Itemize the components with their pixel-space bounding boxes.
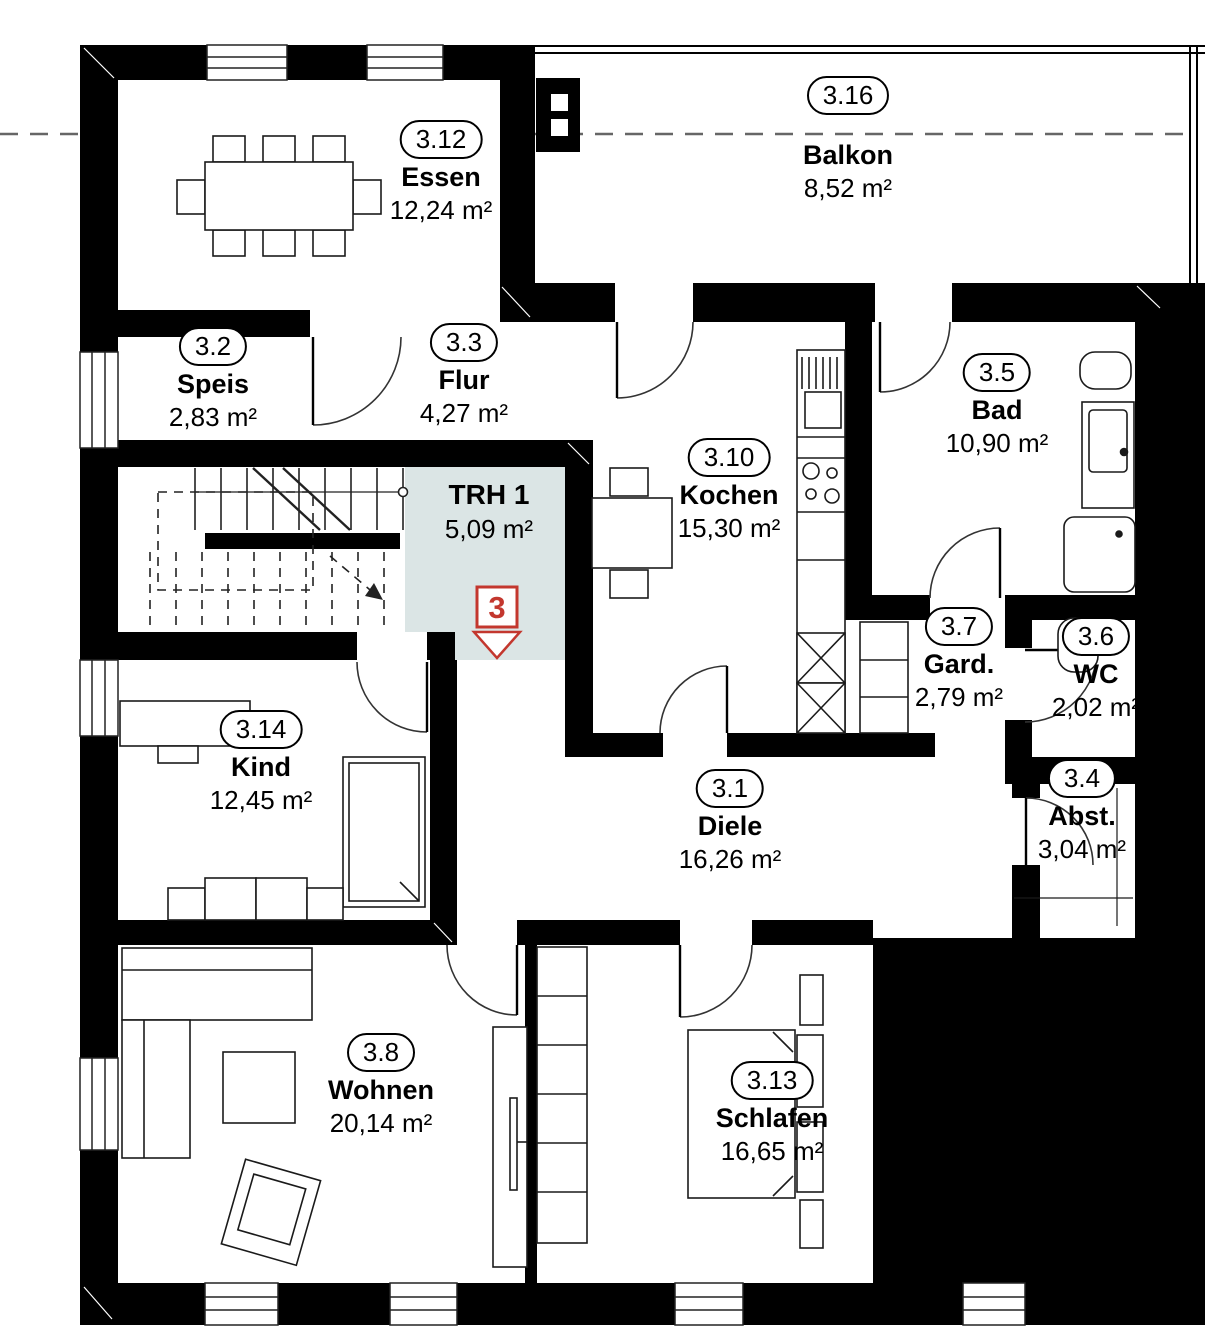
- room-area: 2,83 m²: [169, 403, 257, 432]
- room-label-balkon: 3.16 Balkon 8,52 m²: [803, 76, 893, 203]
- walls: [80, 45, 1205, 1325]
- desk-chair: [158, 746, 198, 763]
- room-area: 5,09 m²: [445, 515, 533, 544]
- room-area: 12,24 m²: [390, 196, 493, 225]
- room-name: TRH 1: [449, 480, 530, 511]
- room-area: 20,14 m²: [330, 1109, 433, 1138]
- chimney: [536, 78, 580, 152]
- room-label-diele: 3.1 Diele 16,26 m²: [679, 769, 782, 874]
- room-area: 4,27 m²: [420, 399, 508, 428]
- room-area: 16,65 m²: [721, 1137, 824, 1166]
- window-essen-1: [207, 45, 287, 80]
- room-area: 10,90 m²: [946, 429, 1049, 458]
- tv: [510, 1098, 517, 1190]
- room-name: Schlafen: [716, 1104, 829, 1134]
- room-number-badge: 3.7: [925, 607, 993, 646]
- door-arc-bad: [930, 528, 1000, 598]
- room-name: Speis: [177, 370, 249, 400]
- room-area: 15,30 m²: [678, 514, 781, 543]
- wardrobe-shelves-gard: [860, 622, 908, 733]
- door-arc-balkon-kochen: [617, 322, 693, 398]
- room-number-badge: 3.10: [688, 438, 771, 477]
- room-area: 2,79 m²: [915, 683, 1003, 712]
- room-number-badge: 3.12: [400, 120, 483, 159]
- room-number-badge: 3.16: [807, 76, 890, 115]
- room-name: Abst.: [1048, 802, 1116, 832]
- window-essen-2: [367, 45, 443, 80]
- kitchen-table-group: [592, 468, 672, 598]
- marker-number: 3: [488, 590, 505, 625]
- room-area: 3,04 m²: [1038, 835, 1126, 864]
- room-area: 12,45 m²: [210, 786, 313, 815]
- coffee-table: [223, 1052, 295, 1123]
- window-bottom-1: [205, 1283, 278, 1325]
- room-label-abst: 3.4 Abst. 3,04 m²: [1038, 759, 1126, 864]
- room-area: 2,02 m²: [1052, 693, 1140, 722]
- room-label-bad: 3.5 Bad 10,90 m²: [946, 353, 1049, 458]
- floor-plan: 3 3.12 Essen 12,24 m² 3.16 Balkon 8,52 m…: [0, 0, 1205, 1343]
- shower: [1064, 517, 1135, 592]
- room-number-badge: 3.3: [430, 323, 498, 362]
- door-arc-kochen-diele: [660, 666, 727, 733]
- door-arc-schlafen: [680, 945, 752, 1017]
- kitchen-counter-group: [797, 350, 845, 733]
- room-name: Wohnen: [328, 1076, 434, 1106]
- room-number-badge: 3.13: [731, 1061, 814, 1100]
- window-kind: [80, 660, 118, 736]
- room-label-speis: 3.2 Speis 2,83 m²: [169, 327, 257, 432]
- room-name: Bad: [971, 396, 1022, 426]
- room-label-kind: 3.14 Kind 12,45 m²: [210, 710, 313, 815]
- room-area: 8,52 m²: [804, 174, 892, 203]
- bathroom-fixtures: [1064, 352, 1135, 592]
- room-label-schlafen: 3.13 Schlafen 16,65 m²: [716, 1061, 829, 1166]
- door-arc-speis: [313, 337, 401, 425]
- room-name: Essen: [401, 163, 481, 193]
- wohnen-furniture: [122, 948, 527, 1267]
- room-name: Gard.: [924, 650, 995, 680]
- room-area: 16,26 m²: [679, 845, 782, 874]
- room-label-kochen: 3.10 Kochen 15,30 m²: [678, 438, 781, 543]
- room-number-badge: 3.6: [1062, 617, 1130, 656]
- room-label-flur: 3.3 Flur 4,27 m²: [420, 323, 508, 428]
- room-number-badge: 3.2: [179, 327, 247, 366]
- wardrobe: [537, 947, 587, 1243]
- room-number-badge: 3.4: [1048, 759, 1116, 798]
- room-name: Kochen: [679, 481, 778, 511]
- room-label-wohnen: 3.8 Wohnen 20,14 m²: [328, 1033, 434, 1138]
- room-name: Diele: [698, 812, 763, 842]
- sofa: [122, 948, 312, 1020]
- window-wohnen: [80, 1058, 118, 1150]
- room-label-wc: 3.6 WC 2,02 m²: [1052, 617, 1140, 722]
- window-bottom-2: [390, 1283, 457, 1325]
- staircase: [150, 468, 408, 630]
- room-number-badge: 3.8: [347, 1033, 415, 1072]
- armchair: [221, 1159, 320, 1265]
- room-label-essen: 3.12 Essen 12,24 m²: [390, 120, 493, 225]
- room-name: WC: [1074, 660, 1119, 690]
- room-number-badge: 3.1: [696, 769, 764, 808]
- window-speis: [80, 352, 118, 448]
- room-name: Kind: [231, 753, 291, 783]
- window-bottom-3: [675, 1283, 743, 1325]
- room-number-badge: 3.5: [963, 353, 1031, 392]
- toilet-bad: [1080, 352, 1131, 389]
- dining-table-group: [177, 136, 381, 256]
- room-label-trh: TRH 1 5,09 m²: [445, 480, 533, 543]
- floor-plan-drawing: 3: [0, 0, 1205, 1343]
- door-arc-balkon-bad: [880, 322, 950, 392]
- door-arc-wohnen: [447, 945, 517, 1015]
- room-name: Balkon: [803, 141, 893, 171]
- room-name: Flur: [439, 366, 490, 396]
- door-arc-kind: [357, 662, 427, 732]
- window-bottom-4: [963, 1283, 1025, 1325]
- room-label-gard: 3.7 Gard. 2,79 m²: [915, 607, 1003, 712]
- room-number-badge: 3.14: [220, 710, 303, 749]
